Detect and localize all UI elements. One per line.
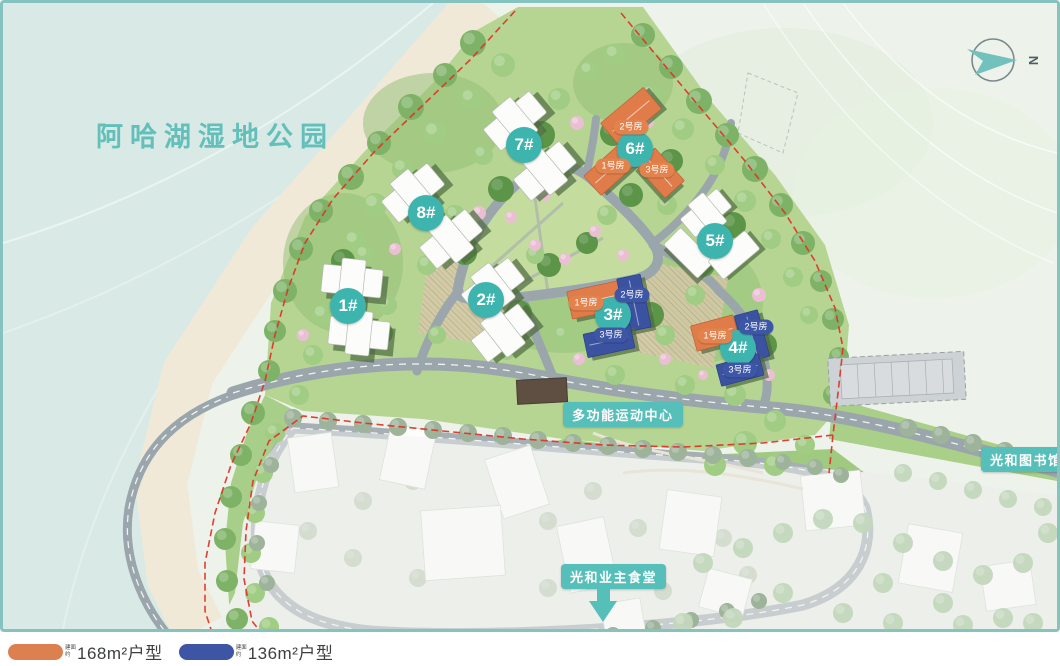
- legend-swatch-orange: [8, 644, 63, 660]
- park-label: 阿哈湖湿地公园: [96, 115, 334, 154]
- unit-pill-4-2: 2号房: [738, 320, 773, 335]
- canteen-arrow-icon: [597, 587, 610, 602]
- legend-prefix: 建面约: [236, 645, 248, 657]
- legend-label-168: 168m²户型: [77, 639, 163, 664]
- unit-pill-3-3: 3号房: [593, 328, 628, 343]
- building-badge-1: 1#: [330, 288, 366, 324]
- unit-pill-4-1: 1号房: [697, 329, 732, 344]
- legend-item-168: 建面约 168m²户型: [8, 639, 163, 664]
- building-badge-5: 5#: [697, 223, 733, 259]
- canteen-arrow-head-icon: [589, 601, 617, 622]
- unit-pill-6-3: 3号房: [639, 163, 674, 178]
- label-canteen: 光和业主食堂: [561, 564, 666, 589]
- legend-swatch-blue: [179, 644, 234, 660]
- unit-pill-3-2: 2号房: [614, 288, 649, 303]
- building-badge-7: 7#: [506, 127, 542, 163]
- compass-north-letter: N: [1026, 56, 1041, 65]
- map-art: [3, 3, 1057, 629]
- legend-prefix: 建面约: [65, 645, 77, 657]
- label-sports-center: 多功能运动中心: [563, 402, 683, 427]
- building-badge-8: 8#: [408, 195, 444, 231]
- parking-lot: [828, 351, 966, 406]
- unit-pill-4-3: 3号房: [722, 363, 757, 378]
- legend-label-136: 136m²户型: [248, 639, 334, 664]
- sports-center-building: [516, 378, 567, 405]
- legend: 建面约 168m²户型 建面约 136m²户型: [8, 639, 333, 664]
- unit-pill-3-1: 1号房: [568, 296, 603, 311]
- map-canvas: 阿哈湖湿地公园 1# 2# 3# 4# 5# 6# 7# 8# 2号房 1号房 …: [0, 0, 1060, 632]
- unit-pill-6-2: 2号房: [613, 120, 648, 135]
- unit-pill-6-1: 1号房: [595, 159, 630, 174]
- site-plan: 阿哈湖湿地公园 1# 2# 3# 4# 5# 6# 7# 8# 2号房 1号房 …: [0, 0, 1060, 666]
- label-library: 光和图书馆: [981, 447, 1060, 472]
- legend-item-136: 建面约 136m²户型: [179, 639, 334, 664]
- building-badge-2: 2#: [468, 282, 504, 318]
